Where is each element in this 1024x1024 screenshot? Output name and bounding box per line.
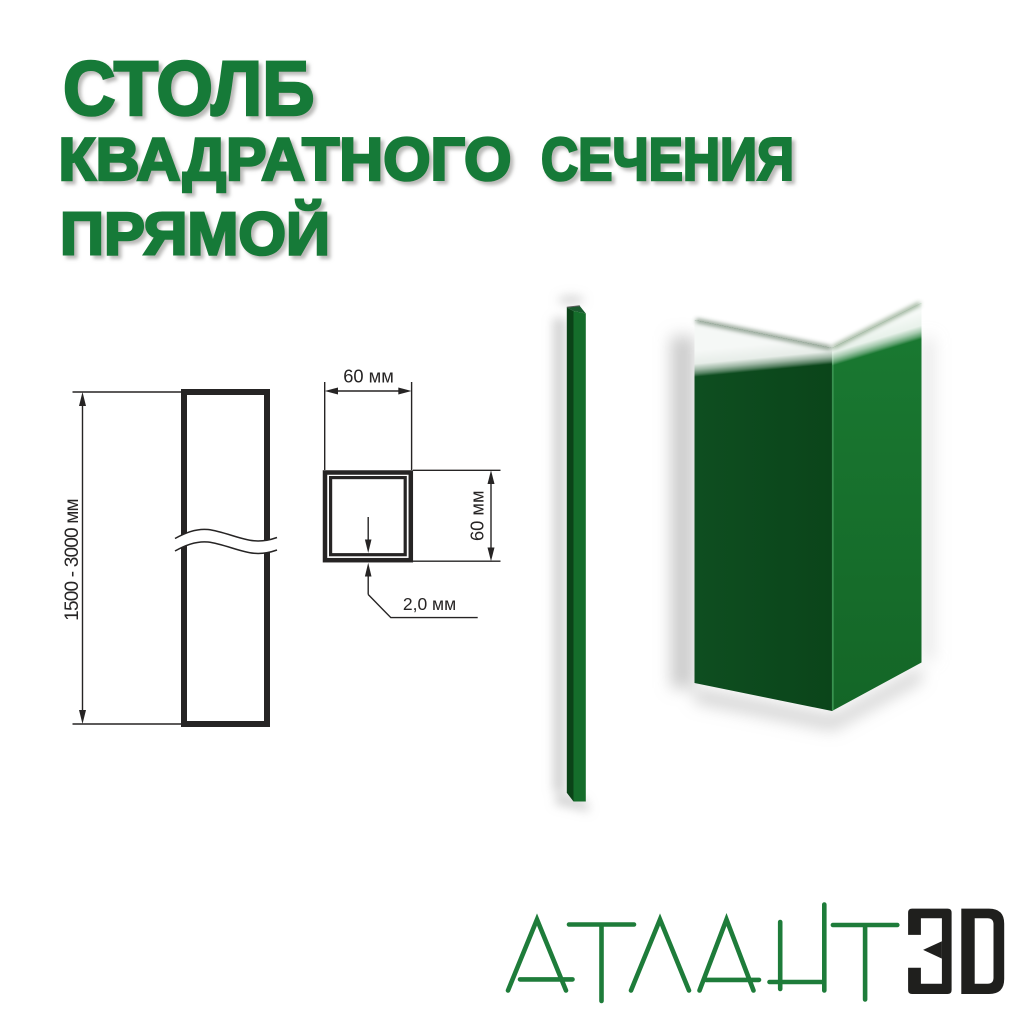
- svg-text:1500 - 3000 мм: 1500 - 3000 мм: [62, 499, 83, 621]
- svg-text:60 мм: 60 мм: [343, 366, 394, 387]
- svg-text:КВАДРАТНОГО: КВАДРАТНОГО: [59, 126, 512, 193]
- svg-text:2,0 мм: 2,0 мм: [403, 594, 456, 614]
- svg-text:СТОЛБ: СТОЛБ: [63, 46, 315, 132]
- svg-text:ПРЯМОЙ: ПРЯМОЙ: [60, 201, 330, 268]
- svg-text:60 мм: 60 мм: [467, 490, 488, 541]
- svg-text:СЕЧЕНИЯ: СЕЧЕНИЯ: [541, 126, 794, 193]
